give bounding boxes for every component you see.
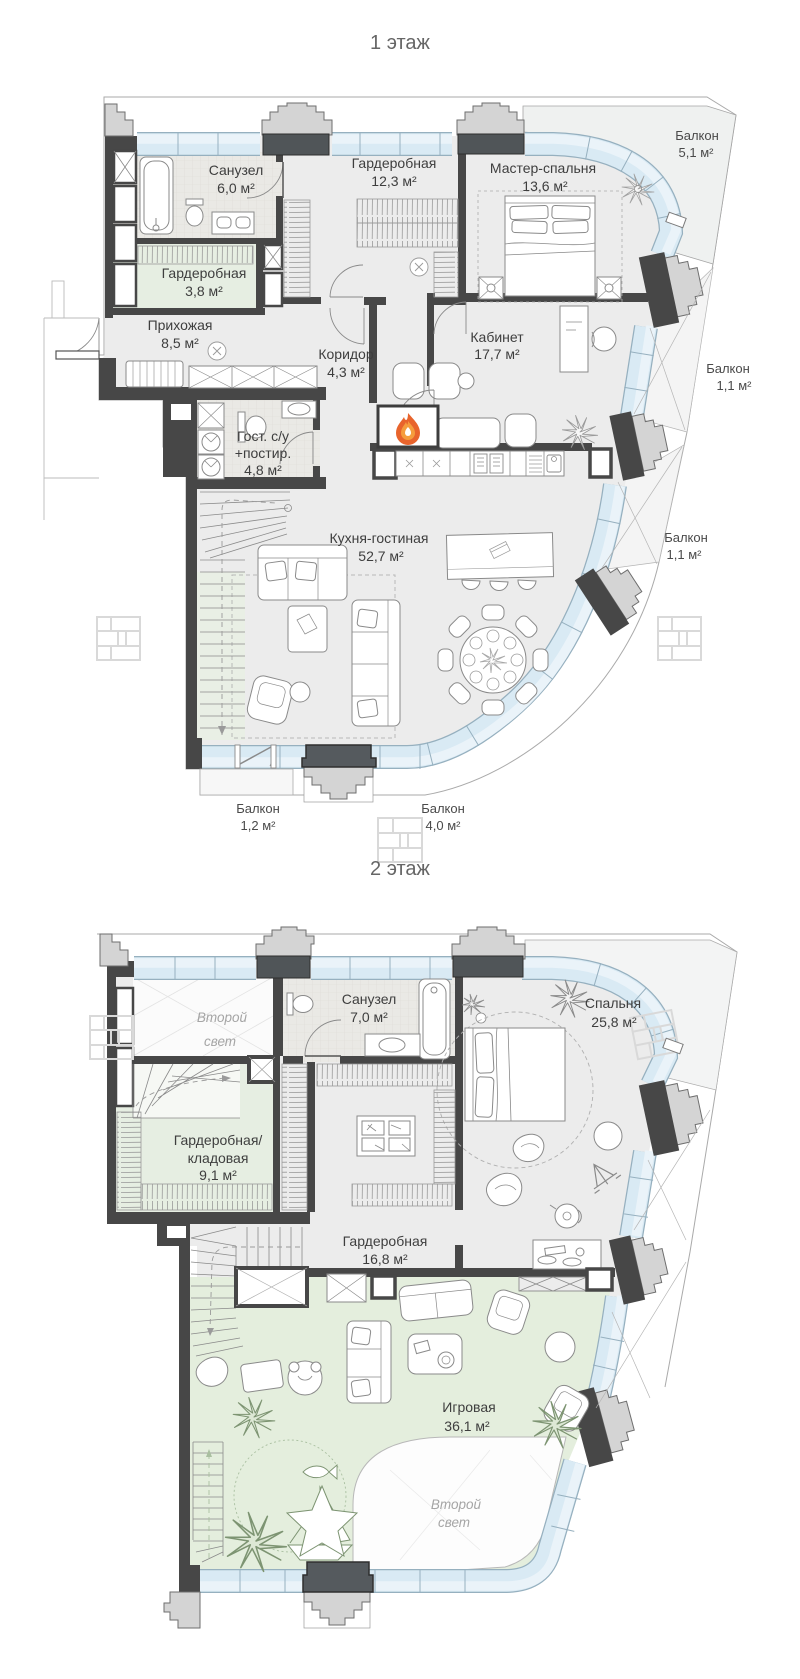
svg-text:Мастер-спальня: Мастер-спальня (490, 160, 596, 176)
svg-text:кладовая: кладовая (188, 1150, 249, 1166)
svg-text:Прихожая: Прихожая (148, 317, 213, 333)
svg-text:1,1 м²: 1,1 м² (717, 378, 753, 393)
svg-text:Санузел: Санузел (342, 991, 397, 1007)
svg-text:Коридор: Коридор (318, 346, 374, 362)
svg-text:36,1 м²: 36,1 м² (444, 1418, 490, 1434)
svg-text:1 этаж: 1 этаж (370, 32, 431, 54)
svg-text:Санузел: Санузел (209, 162, 264, 178)
svg-text:16,8 м²: 16,8 м² (362, 1251, 408, 1267)
svg-text:9,1 м²: 9,1 м² (199, 1167, 237, 1183)
svg-text:52,7 м²: 52,7 м² (358, 548, 404, 564)
svg-text:6,0 м²: 6,0 м² (217, 180, 255, 196)
svg-text:17,7 м²: 17,7 м² (474, 346, 520, 362)
svg-text:7,0 м²: 7,0 м² (350, 1009, 388, 1025)
svg-text:Игровая: Игровая (442, 1399, 495, 1415)
svg-text:свет: свет (204, 1034, 236, 1049)
svg-text:Гардеробная: Гардеробная (343, 1233, 428, 1249)
svg-text:Балкон: Балкон (664, 530, 708, 545)
svg-text:Спальня: Спальня (585, 995, 641, 1011)
svg-text:Второй: Второй (197, 1010, 248, 1025)
svg-text:Балкон: Балкон (236, 801, 280, 816)
svg-text:Балкон: Балкон (421, 801, 465, 816)
svg-text:3,8 м²: 3,8 м² (185, 283, 223, 299)
svg-text:Гардеробная: Гардеробная (162, 265, 247, 281)
svg-text:Балкон: Балкон (675, 128, 719, 143)
svg-text:1,1 м²: 1,1 м² (667, 547, 703, 562)
svg-text:12,3 м²: 12,3 м² (371, 173, 417, 189)
svg-text:1,2 м²: 1,2 м² (241, 818, 277, 833)
svg-text:25,8 м²: 25,8 м² (591, 1014, 637, 1030)
svg-text:Кабинет: Кабинет (470, 329, 524, 345)
svg-text:Гардеробная/: Гардеробная/ (174, 1132, 263, 1148)
svg-text:Кухня-гостиная: Кухня-гостиная (329, 530, 428, 546)
svg-text:свет: свет (438, 1515, 470, 1530)
svg-text:4,0 м²: 4,0 м² (426, 818, 462, 833)
svg-text:13,6 м²: 13,6 м² (522, 178, 568, 194)
svg-text:Балкон: Балкон (706, 361, 750, 376)
svg-text:2 этаж: 2 этаж (370, 858, 431, 880)
svg-text:Гардеробная: Гардеробная (352, 155, 437, 171)
svg-text:Второй: Второй (431, 1497, 482, 1512)
svg-text:4,3 м²: 4,3 м² (327, 364, 365, 380)
svg-text:Гост. с/у: Гост. с/у (237, 428, 289, 444)
svg-text:+постир.: +постир. (235, 445, 291, 461)
svg-text:8,5 м²: 8,5 м² (161, 335, 199, 351)
svg-text:5,1 м²: 5,1 м² (679, 145, 715, 160)
svg-text:4,8 м²: 4,8 м² (244, 462, 282, 478)
